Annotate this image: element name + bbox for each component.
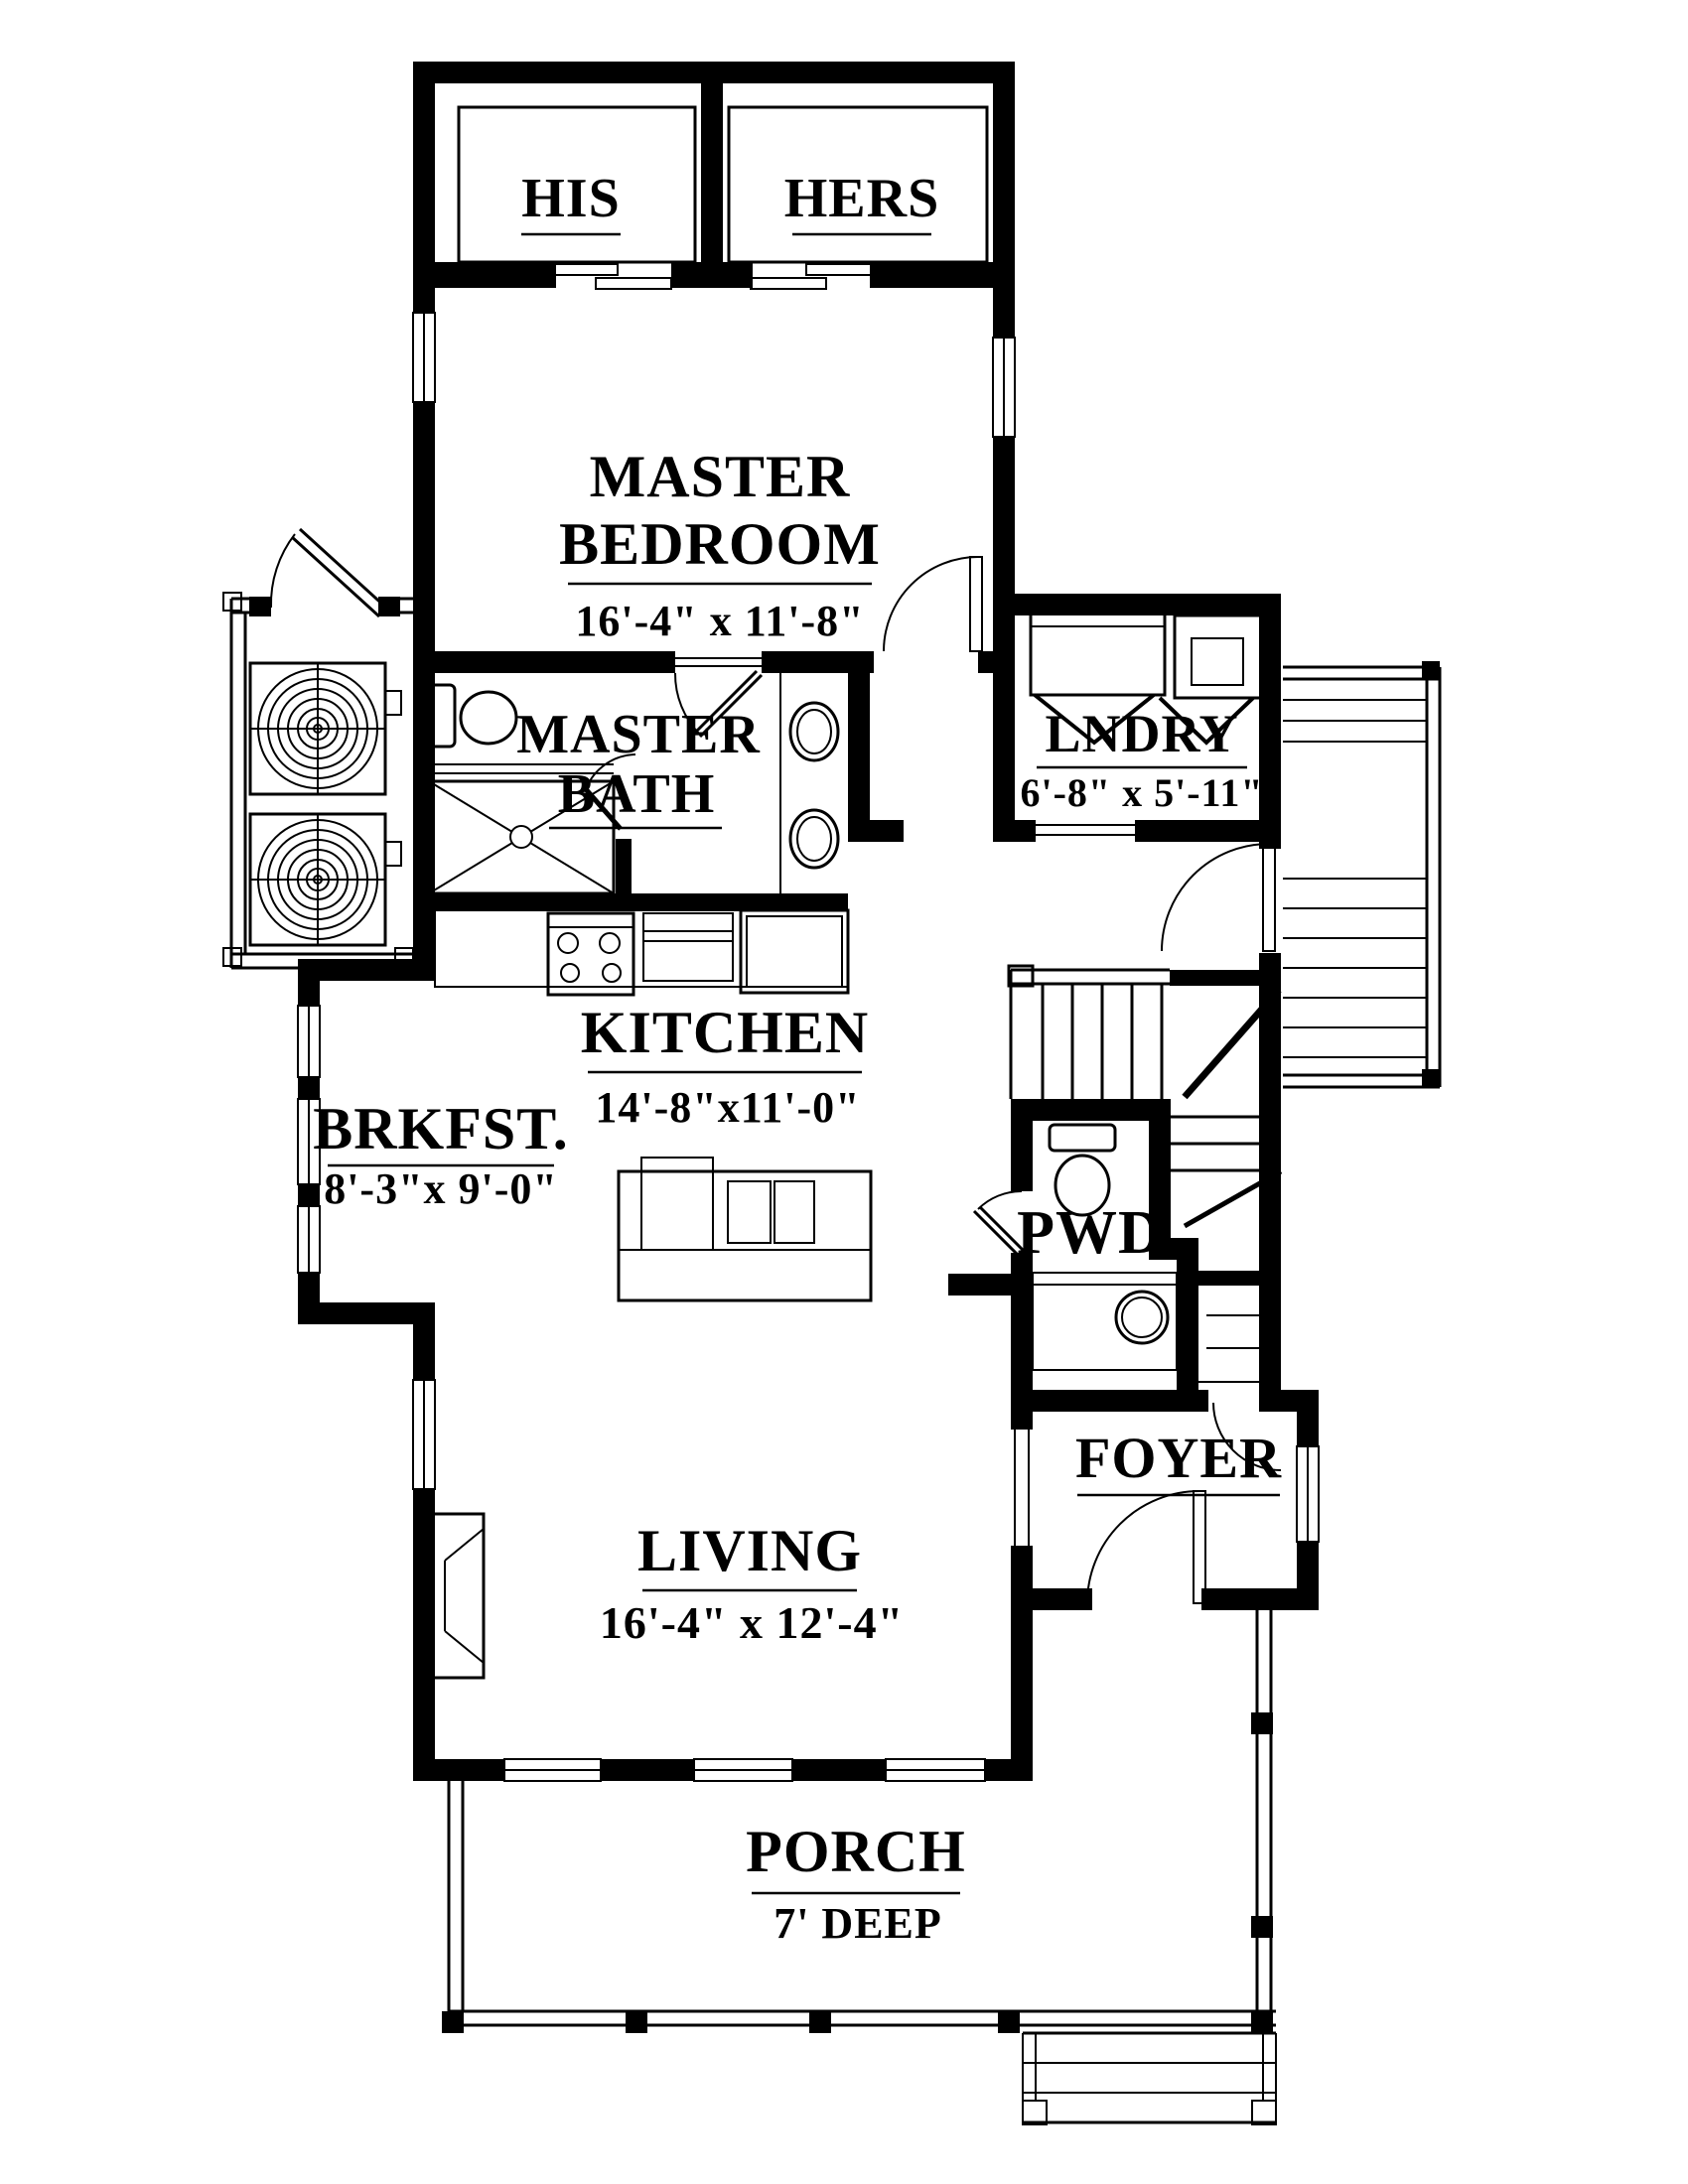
label-foyer: FOYER [1075,1426,1282,1490]
label-hers-closet: HERS [784,168,940,229]
refrigerator-icon [741,910,848,993]
label-master-bedroom: MASTER [590,444,851,509]
laundry-appliances [1031,613,1261,698]
dims-laundry: 6'-8" x 5'-11" [1020,770,1263,815]
label-master-bedroom: BEDROOM [559,511,881,577]
island-sink-icon [728,1181,771,1243]
label-living: LIVING [637,1518,862,1583]
dims-master-bedroom: 16'-4" x 11'-8" [575,597,864,645]
rear-entry-door [1162,844,1275,951]
hers-closet-door-icon [751,278,826,289]
floor-plan-drawing: HIS HERS MASTER BEDROOM 16'-4" x 11'-8" … [0,0,1688,2184]
hvac-unit-icon [250,663,401,794]
wall-oven-icon [643,913,733,981]
deck-gate-door [271,529,387,616]
window-breakfast-1 [298,1006,320,1077]
label-master-bath: MASTER [516,704,761,765]
window-foyer-right [1297,1446,1319,1542]
hvac-unit-icon [250,814,401,945]
window-living-south-2 [694,1759,792,1781]
label-his-closet: HIS [521,168,621,229]
front-door [1087,1491,1205,1603]
range-icon [548,913,633,995]
porch-steps [1023,2033,1276,2124]
label-kitchen: KITCHEN [581,1000,869,1065]
window-bedroom-left [413,313,435,402]
window-breakfast-3 [298,1206,320,1273]
powder-vanity-icon [1033,1273,1177,1370]
his-closet-door-icon [596,278,671,289]
window-living-south-3 [886,1759,985,1781]
label-porch: PORCH [746,1819,966,1884]
island-sink-icon [774,1181,814,1243]
main-stairs [1009,966,1281,1382]
fireplace-icon [427,1514,484,1678]
step-post [1023,2101,1047,2124]
label-breakfast: BRKFST. [313,1096,569,1161]
kitchen-island [619,1158,871,1300]
dryer-door-icon [1192,638,1243,685]
label-powder: PWD [1017,1199,1164,1267]
dims-porch: 7' DEEP [774,1899,942,1948]
step-post [1252,2101,1276,2124]
dims-living: 16'-4" x 12'-4" [600,1597,904,1648]
left-equipment-deck [223,593,413,968]
dims-kitchen: 14'-8"x11'-0" [595,1083,860,1132]
window-bedroom-right [993,338,1015,437]
foyer-cased-opening [1015,1430,1029,1546]
rear-deck [1283,667,1440,1087]
window-living-south-1 [504,1759,601,1781]
floor-plan-page: HIS HERS MASTER BEDROOM 16'-4" x 11'-8" … [0,0,1688,2184]
kitchen-counter [435,910,848,987]
label-master-bath: BATH [558,763,716,825]
bedroom-door [884,557,982,651]
dims-breakfast: 8'-3"x 9'-0" [324,1164,558,1213]
washer-icon [1031,613,1165,695]
window-living-west [413,1380,435,1489]
toilet-icon [429,685,516,747]
room-labels: HIS HERS MASTER BEDROOM 16'-4" x 11'-8" … [313,168,1282,1948]
label-laundry: LNDRY [1045,704,1238,763]
double-vanity-icon [780,673,838,893]
